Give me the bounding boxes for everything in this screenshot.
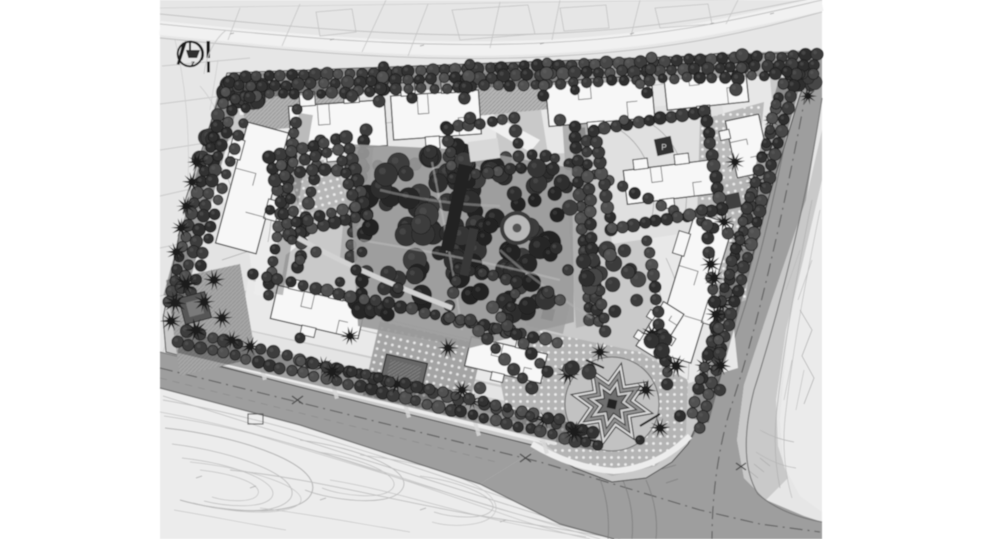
svg-text:P: P	[661, 143, 666, 152]
svg-text:z: z	[190, 59, 195, 69]
